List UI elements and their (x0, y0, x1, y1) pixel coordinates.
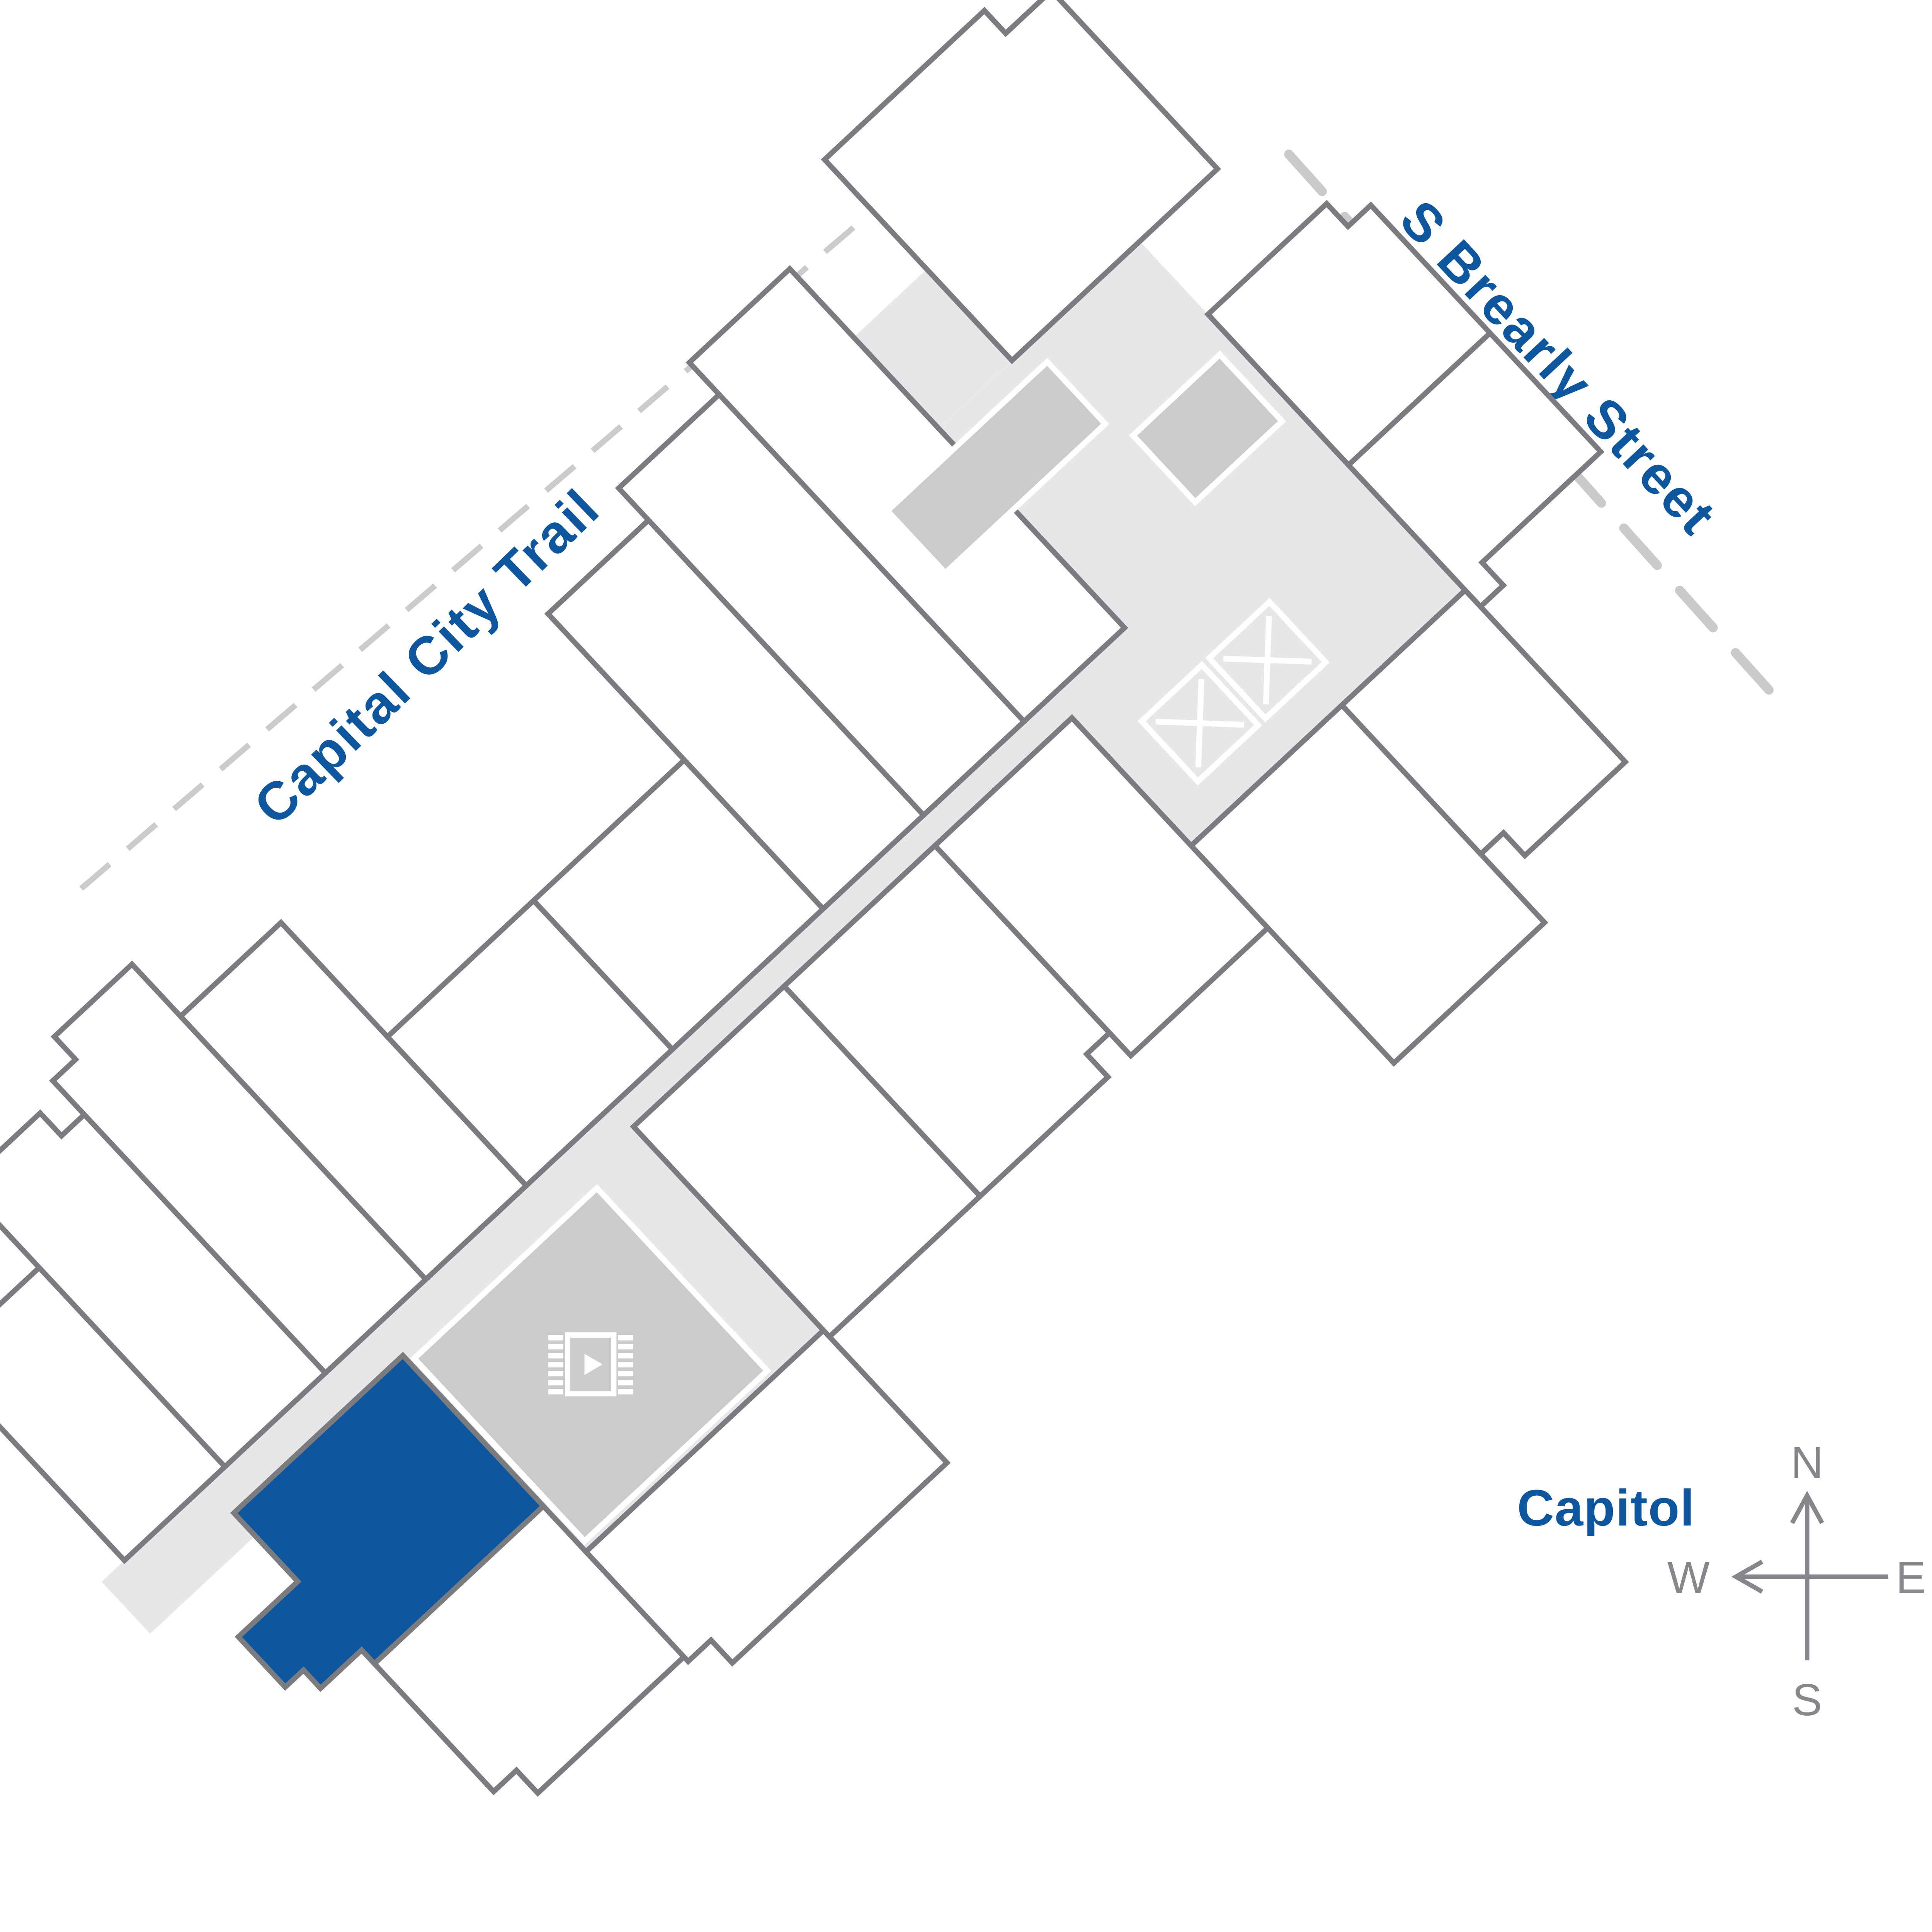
compass-e: E (1896, 1552, 1926, 1602)
film-sprocket-hole (618, 1362, 633, 1367)
film-sprocket-hole (618, 1380, 633, 1385)
film-sprocket-hole (618, 1389, 633, 1395)
trail-label: Capital City Trail (243, 478, 611, 837)
film-sprocket-hole (548, 1380, 563, 1385)
film-sprocket-hole (618, 1353, 633, 1359)
building-plan (0, 0, 1810, 1932)
film-sprocket-hole (548, 1335, 563, 1340)
compass-w: W (1667, 1552, 1710, 1602)
site-plan: Capital City Trail S Brearly Street (0, 0, 1932, 1932)
film-sprocket-hole (618, 1335, 633, 1340)
film-sprocket-hole (618, 1344, 633, 1349)
film-sprocket-hole (548, 1371, 563, 1376)
film-sprocket-hole (548, 1353, 563, 1359)
film-sprocket-hole (618, 1371, 633, 1376)
film-sprocket-hole (548, 1344, 563, 1349)
compass-s: S (1792, 1675, 1822, 1725)
film-sprocket-hole (548, 1389, 563, 1395)
compass-rose: N S W E (1667, 1437, 1926, 1725)
capitol-label: Capitol (1517, 1480, 1695, 1537)
compass-n: N (1791, 1437, 1823, 1488)
site-plan-canvas: Capital City Trail S Brearly Street (0, 0, 1932, 1932)
film-sprocket-hole (548, 1362, 563, 1367)
